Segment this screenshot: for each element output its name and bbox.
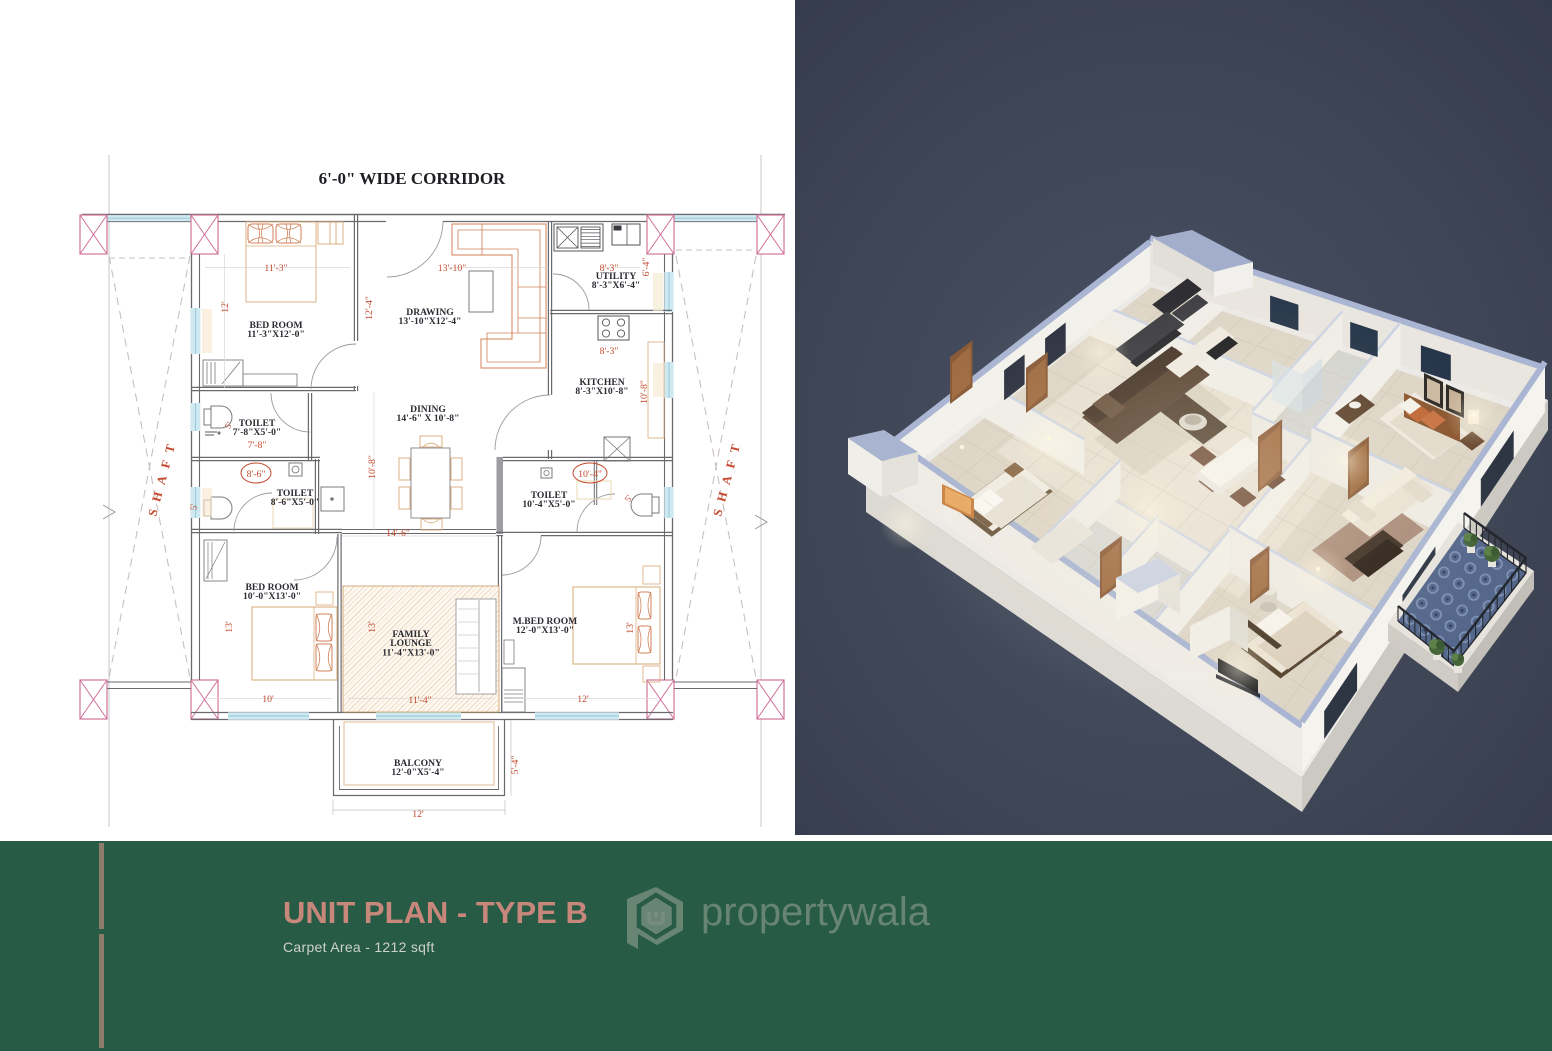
svg-text:12': 12' — [412, 809, 424, 820]
svg-text:11'-4": 11'-4" — [408, 695, 431, 706]
svg-text:13'-10": 13'-10" — [438, 263, 467, 274]
svg-text:8'-3"X6'-4": 8'-3"X6'-4" — [592, 280, 641, 291]
svg-text:10'-4"X5'-0": 10'-4"X5'-0" — [522, 499, 575, 510]
svg-text:12': 12' — [220, 301, 231, 313]
svg-text:11'-3": 11'-3" — [264, 263, 287, 274]
svg-text:8'-3": 8'-3" — [600, 346, 619, 357]
svg-text:10'-0"X13'-0": 10'-0"X13'-0" — [243, 591, 301, 602]
svg-text:12': 12' — [577, 694, 589, 705]
svg-text:10'-8": 10'-8" — [367, 455, 378, 479]
svg-text:14'-6": 14'-6" — [386, 528, 410, 539]
svg-text:8'-6"X5'-0": 8'-6"X5'-0" — [271, 497, 320, 508]
svg-text:13'-10"X12'-4": 13'-10"X12'-4" — [399, 316, 462, 327]
svg-text:5'-4": 5'-4" — [510, 756, 521, 775]
svg-text:10'-8": 10'-8" — [639, 380, 650, 404]
svg-text:6'-0" WIDE CORRIDOR: 6'-0" WIDE CORRIDOR — [319, 169, 506, 188]
svg-text:13': 13' — [367, 621, 378, 633]
svg-text:5': 5' — [189, 504, 199, 511]
svg-text:13': 13' — [625, 622, 636, 634]
svg-text:propertywala: propertywala — [701, 890, 931, 934]
svg-text:6'-4": 6'-4" — [641, 258, 652, 277]
svg-text:11'-3"X12'-0": 11'-3"X12'-0" — [247, 329, 305, 340]
svg-text:12'-4": 12'-4" — [364, 296, 375, 320]
svg-text:11'-4"X13'-0": 11'-4"X13'-0" — [382, 647, 440, 658]
svg-text:7'-8"X5'-0": 7'-8"X5'-0" — [233, 427, 282, 438]
svg-text:8'-6": 8'-6" — [247, 469, 266, 480]
svg-text:7'-8": 7'-8" — [248, 440, 267, 451]
svg-text:8'-3"X10'-8": 8'-3"X10'-8" — [575, 386, 628, 397]
svg-text:13': 13' — [224, 621, 235, 633]
svg-text:14'-6" X 10'-8": 14'-6" X 10'-8" — [397, 413, 460, 424]
svg-text:12'-0"X5'-4": 12'-0"X5'-4" — [391, 767, 444, 778]
svg-text:12'-0"X13'-0": 12'-0"X13'-0" — [516, 625, 574, 636]
svg-text:10'-4": 10'-4" — [578, 469, 602, 480]
svg-text:10': 10' — [262, 694, 274, 705]
svg-text:8'-3": 8'-3" — [600, 263, 619, 274]
